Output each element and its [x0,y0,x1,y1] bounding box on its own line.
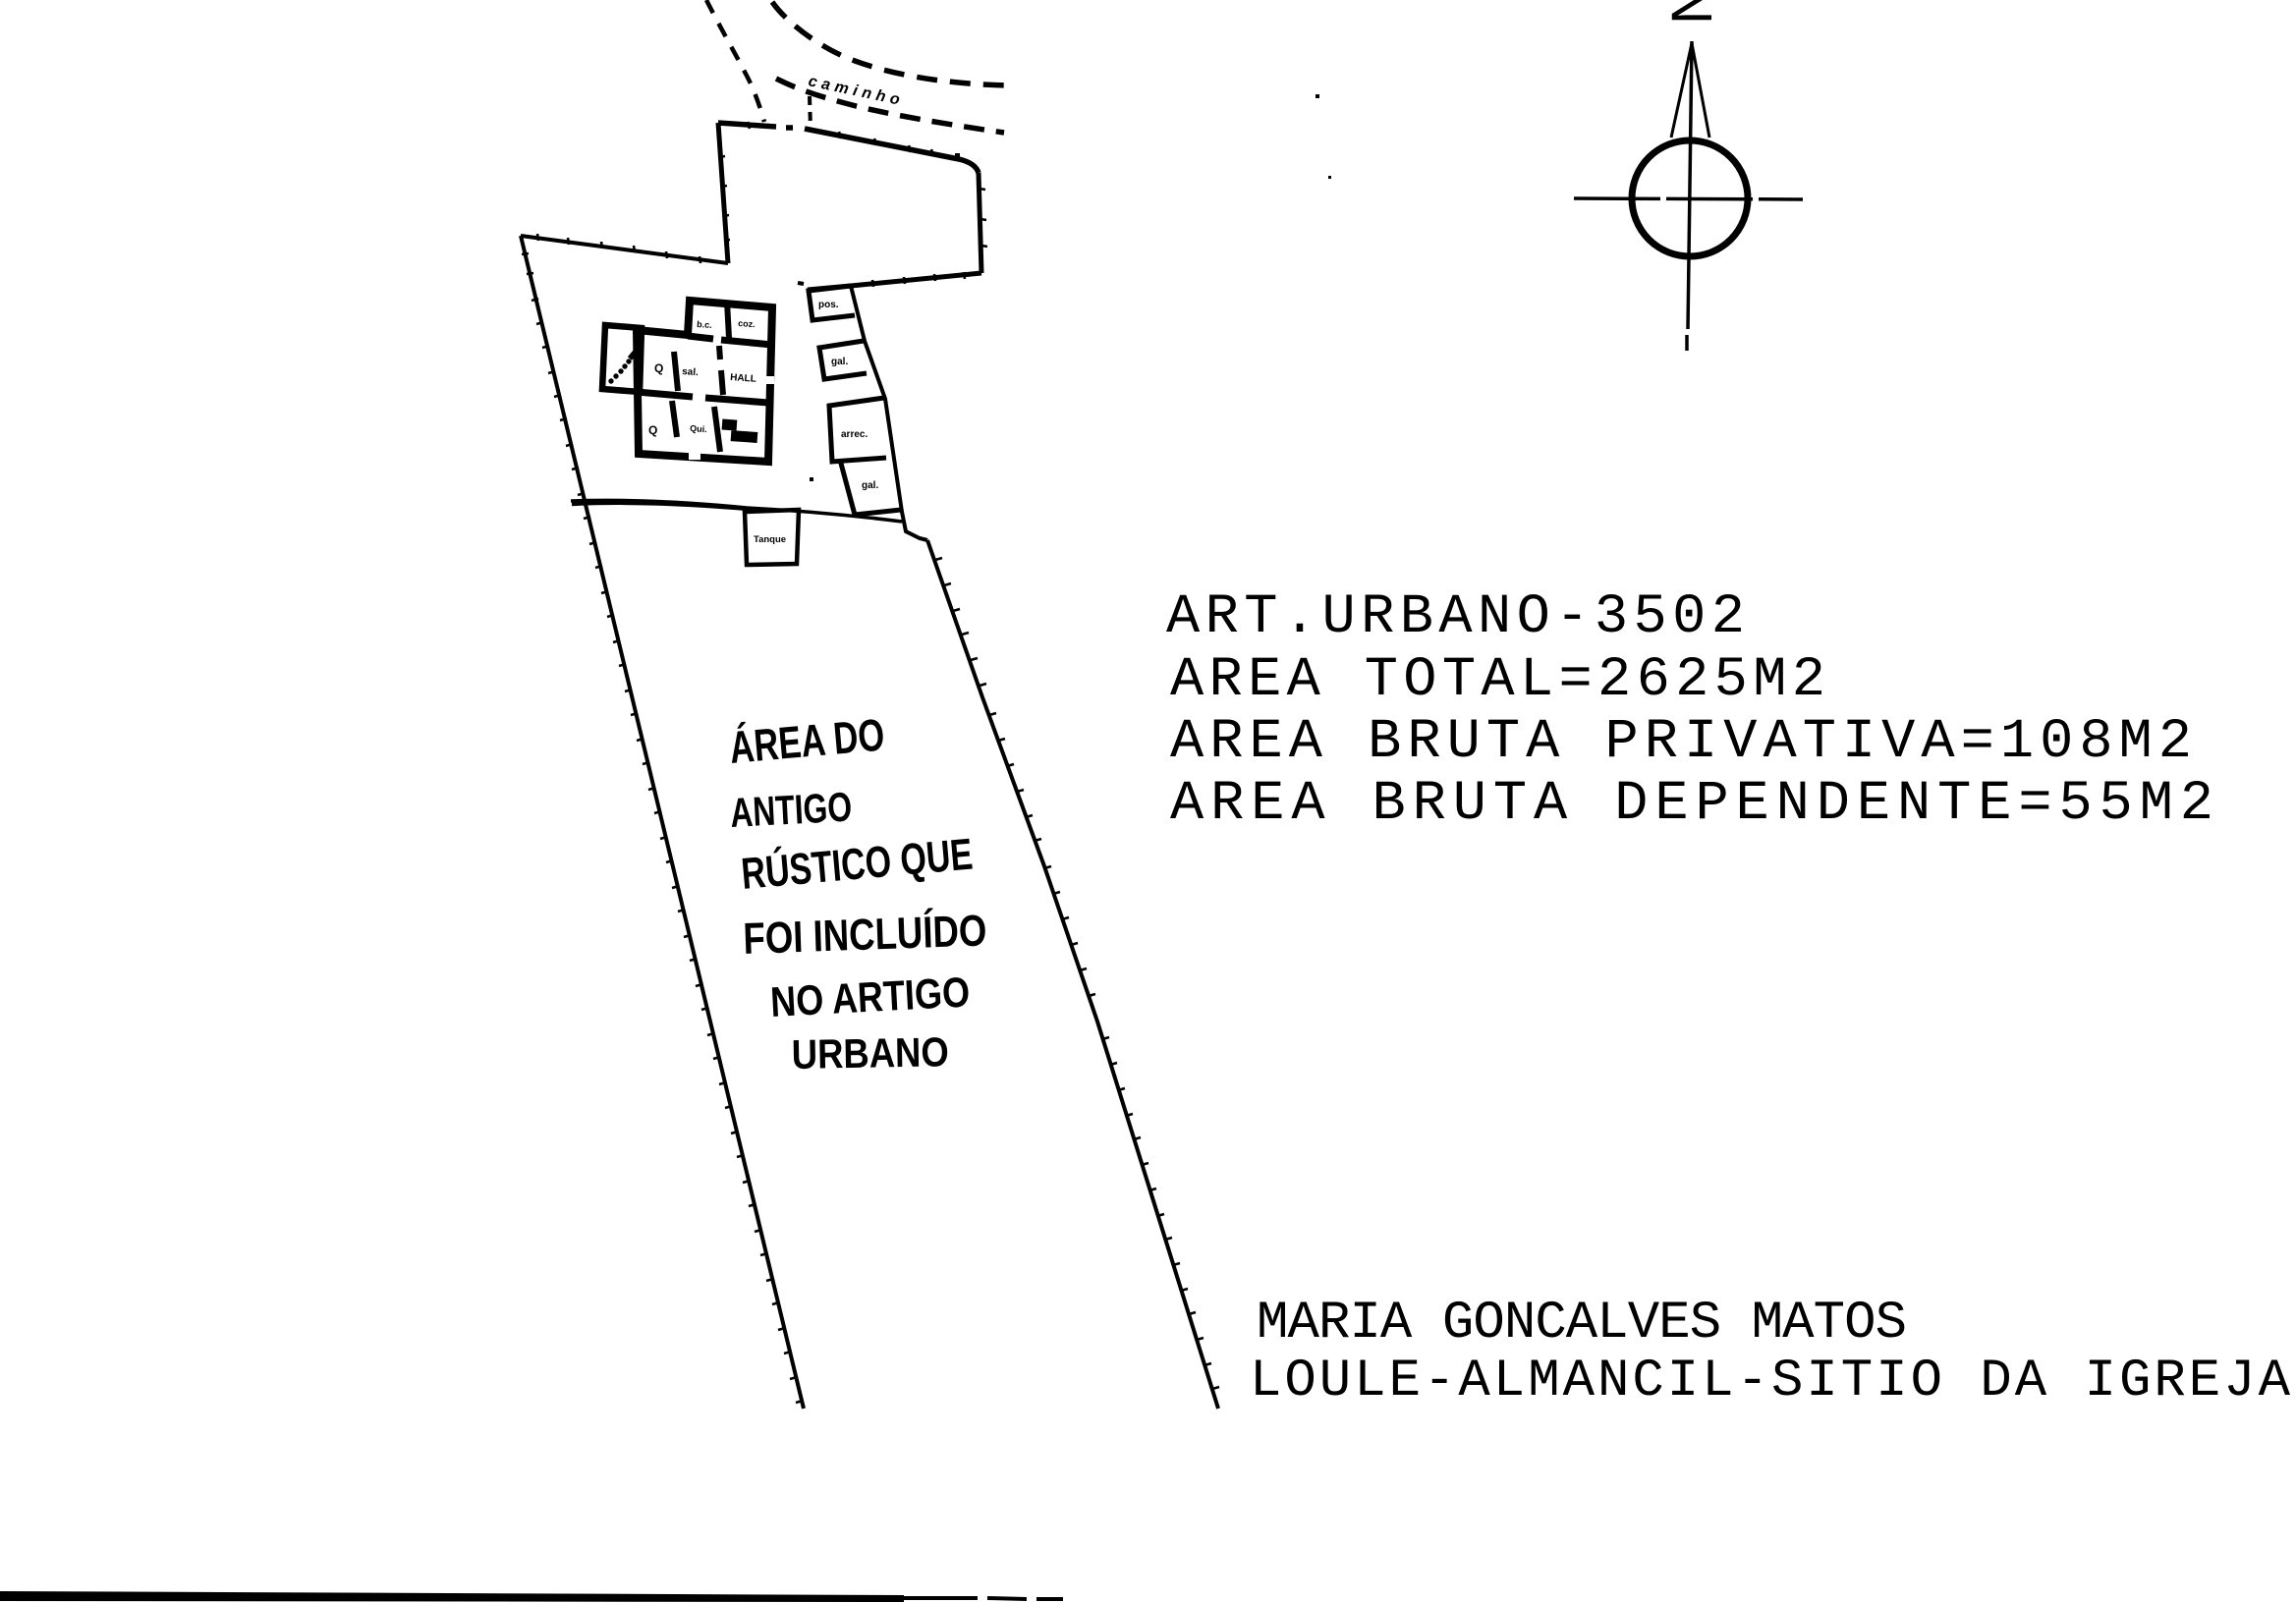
svg-text:gal.: gal. [831,357,848,367]
svg-text:Q: Q [654,361,663,375]
svg-text:ART.URBANO-3502: ART.URBANO-3502 [1166,586,1745,649]
svg-text:MARIA GONCALVES MATOS: MARIA GONCALVES MATOS [1257,1294,1907,1354]
svg-text:arrec.: arrec. [841,429,868,440]
svg-text:N: N [1660,0,1724,25]
svg-text:FOI INCLUÍDO: FOI INCLUÍDO [743,905,988,964]
svg-text:coz.: coz. [738,318,756,329]
svg-text:gal.: gal. [862,480,878,491]
svg-text:Tanque: Tanque [754,534,786,545]
svg-text:Q: Q [648,423,657,437]
svg-text:b.c.: b.c. [697,319,712,330]
svg-text:URBANO: URBANO [791,1028,949,1078]
svg-text:sal.: sal. [682,366,700,378]
svg-text:AREA TOTAL=2625M2: AREA TOTAL=2625M2 [1170,649,1825,712]
svg-text:Qui.: Qui. [690,423,707,434]
svg-text:pos.: pos. [818,300,839,310]
svg-text:HALL: HALL [730,372,756,385]
svg-text:ANTIGO: ANTIGO [729,784,853,836]
